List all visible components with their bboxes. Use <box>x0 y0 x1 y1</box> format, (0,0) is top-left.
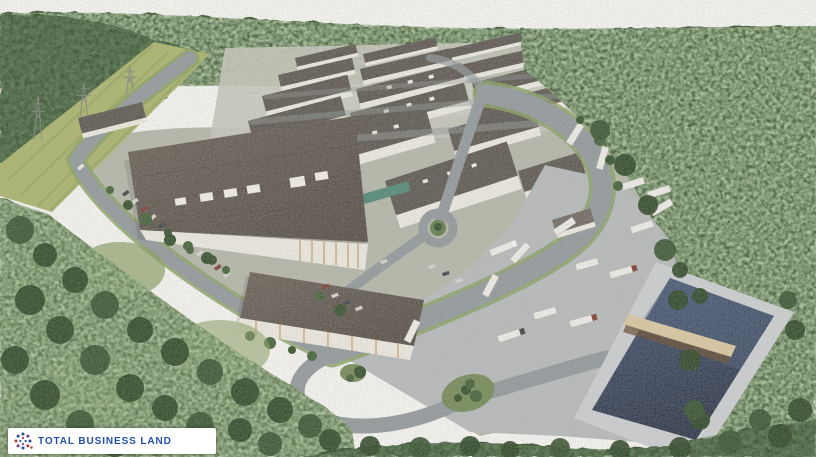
grain-overlay <box>0 0 816 457</box>
scene-canvas <box>0 0 816 457</box>
logo-badge: TOTAL BUSINESS LAND <box>8 428 216 454</box>
logo-text: TOTAL BUSINESS LAND <box>38 436 172 447</box>
aerial-render: TOTAL BUSINESS LAND <box>0 0 816 457</box>
logo-globe-icon <box>12 430 34 452</box>
